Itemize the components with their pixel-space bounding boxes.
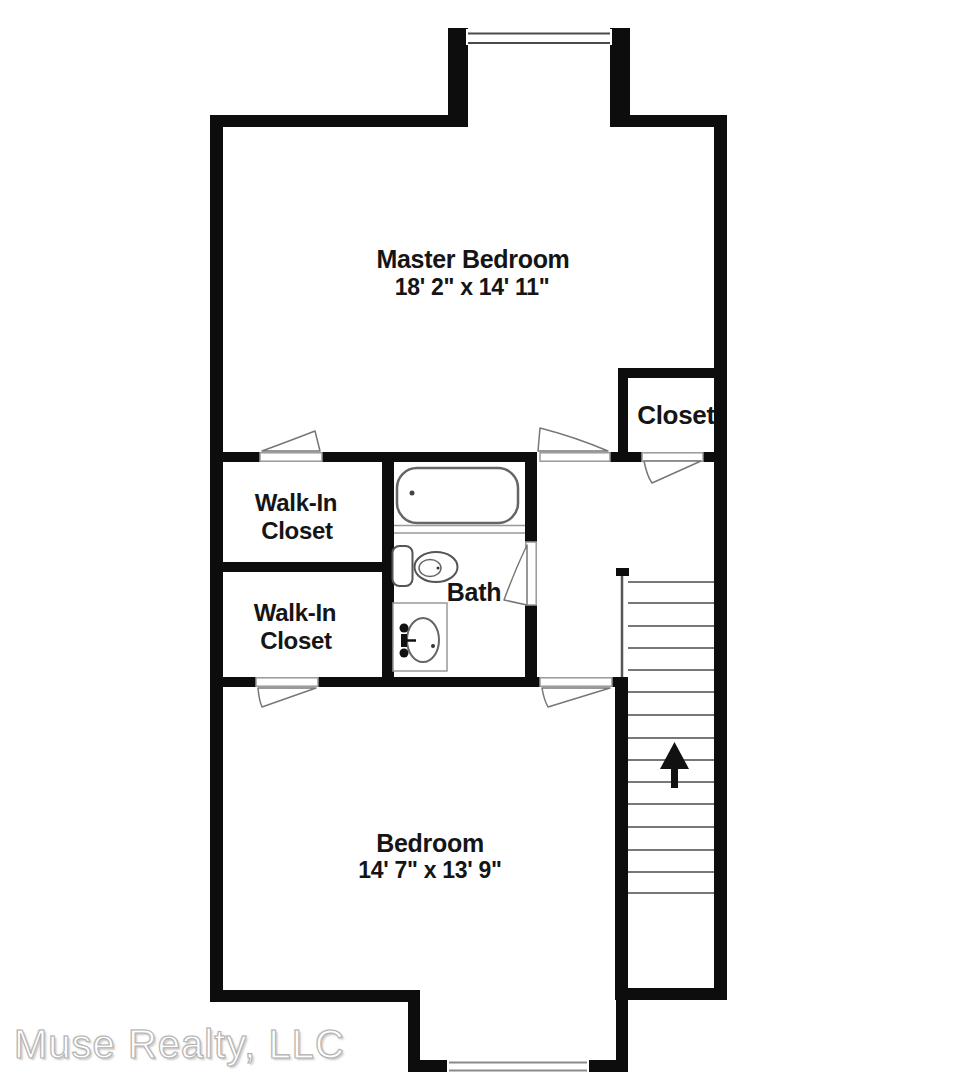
walk-in-closet-2-label-line2: Closet	[260, 629, 332, 653]
up-arrow-head	[660, 742, 689, 769]
sink-vanity	[393, 603, 447, 671]
bay-bottom-wall-left-side	[408, 990, 420, 1072]
hall-door-threshold	[540, 453, 610, 461]
mb-wall-seg-a	[210, 452, 260, 462]
bedroom-wall-seg-b	[318, 677, 540, 687]
faucet-handle-top	[400, 624, 409, 633]
sink-drain	[431, 644, 435, 648]
master-bedroom-label: Master Bedroom	[376, 247, 569, 272]
walk-in-closet-1-label-line1: Walk-In	[255, 491, 337, 515]
closet-door-threshold	[642, 453, 703, 461]
up-arrow-shaft	[671, 769, 678, 788]
closet-top-wall	[618, 368, 715, 378]
wall-right	[714, 115, 727, 1000]
bay-wall-left	[448, 28, 468, 127]
staircase	[616, 568, 714, 893]
master-bedroom-dimensions: 18' 2" x 14' 11"	[395, 276, 550, 299]
hall-door-swing	[538, 428, 608, 451]
stair-bottom-wall	[615, 988, 727, 1000]
floor-plan: Master Bedroom 18' 2" x 14' 11" Walk-In …	[0, 0, 964, 1080]
bathtub-drain	[410, 491, 415, 496]
wall-bottom-left	[210, 990, 420, 1002]
bedroom-door-swing	[542, 688, 610, 707]
wic1-door-swing	[262, 431, 320, 451]
top-window	[466, 29, 612, 45]
banister-newel-cap	[616, 568, 629, 576]
bathtub	[394, 468, 525, 533]
mb-wall-seg-d	[703, 452, 715, 462]
stair-treads	[628, 582, 714, 893]
bottom-window	[447, 1059, 589, 1073]
wic2-door-threshold	[256, 678, 318, 686]
realty-watermark: Muse Realty, LLC	[14, 1022, 345, 1067]
wic2-door-swing	[258, 688, 316, 707]
closet-label: Closet	[637, 402, 715, 428]
wall-left	[210, 115, 223, 1002]
bath-label: Bath	[447, 580, 501, 605]
bay-wall-right	[610, 28, 630, 127]
bedroom-door-threshold	[540, 678, 612, 686]
bath-right-wall-lower	[525, 605, 537, 687]
mb-wall-seg-b	[322, 452, 537, 462]
closet-left-wall	[618, 368, 628, 462]
floor-plan-drawing	[0, 0, 964, 1080]
faucet-body	[401, 634, 407, 647]
bath-right-wall-upper	[525, 452, 537, 542]
bedroom-dimensions: 14' 7" x 13' 9"	[358, 859, 501, 882]
bay-bottom-wall-seg-a	[408, 1060, 450, 1072]
bath-door-swing	[504, 545, 527, 605]
wic1-door-threshold	[260, 453, 322, 461]
walk-in-closet-1-label-line2: Closet	[261, 519, 333, 543]
bathtub-outline	[397, 468, 518, 523]
toilet-tank	[393, 546, 413, 586]
wall-top-left	[210, 115, 468, 127]
bathroom-fixtures	[393, 468, 526, 671]
closet-door-swing	[644, 461, 701, 483]
bedroom-wall-seg-a	[210, 677, 256, 687]
toilet-hinge-dot	[437, 567, 440, 570]
walk-in-closet-2-label-line1: Walk-In	[254, 601, 336, 625]
exterior-walls	[210, 28, 727, 1072]
bay-bottom-wall-right-side	[616, 1000, 628, 1072]
stair-left-wall	[615, 677, 628, 988]
bedroom-label: Bedroom	[376, 831, 484, 856]
faucet-handle-bottom	[400, 649, 409, 658]
wic-divider-wall	[210, 562, 394, 572]
